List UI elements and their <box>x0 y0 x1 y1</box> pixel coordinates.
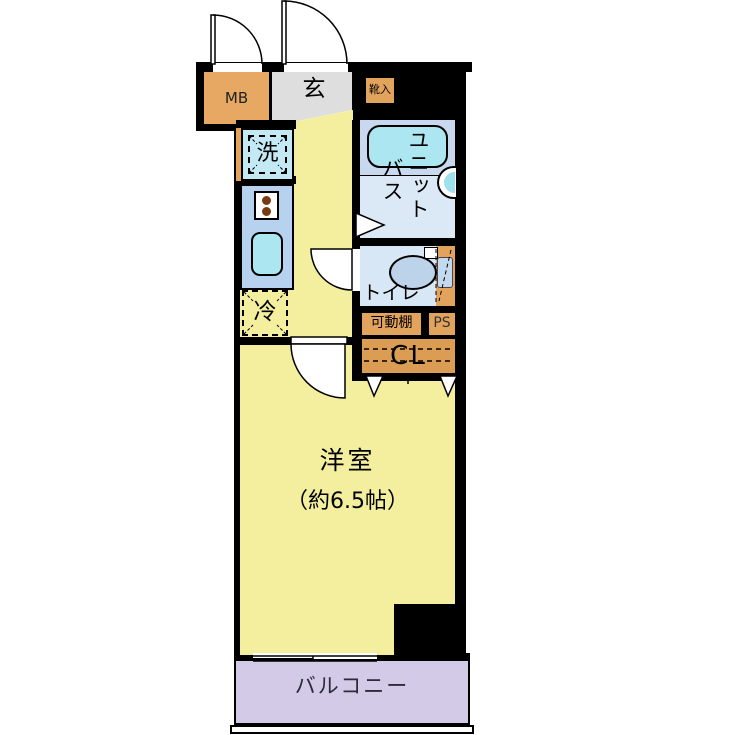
mb-door-leaf <box>211 15 215 64</box>
entrance-door-swing-arc <box>284 1 347 64</box>
floor-plan: MB 玄 靴入 ユニット バス 洗 トイレ 可動棚 PS CL 冷 洋室 （約6… <box>0 0 735 735</box>
room-name-label: 洋室 <box>240 445 455 477</box>
wall-room-top-right <box>345 337 353 345</box>
entrance-door-opening <box>284 63 348 72</box>
toilet-door-opening <box>352 249 360 291</box>
balcony-railing <box>230 725 474 734</box>
room-size-label: （約6.5帖） <box>240 487 455 517</box>
entrance-door-leaf <box>282 1 286 64</box>
unit-bath-label: ユニット <box>403 129 433 221</box>
movable-shelf-label: 可動棚 <box>362 313 421 335</box>
wall-bath-toilet <box>352 238 455 246</box>
corner-column <box>394 604 466 663</box>
kitchen-sink <box>251 232 283 276</box>
washer-label: 洗 <box>246 133 289 176</box>
stove-burner <box>262 196 271 205</box>
fridge-label: 冷 <box>242 290 288 336</box>
toilet-label: トイレ <box>360 282 422 304</box>
wall-bath-left <box>352 120 360 246</box>
balcony-label: バルコニー <box>234 662 470 712</box>
closet-label: CL <box>362 339 455 373</box>
mb-door-opening <box>213 63 262 72</box>
wall-room-top-left <box>234 337 292 345</box>
pipe-shaft-tank <box>437 257 453 288</box>
mb-door-swing-arc <box>213 15 262 64</box>
stove-burner <box>262 207 271 216</box>
shoe-storage-label: 靴入 <box>366 78 394 103</box>
unit-bath-label: バス <box>377 157 407 203</box>
meter-box-label: MB <box>204 72 269 124</box>
pipe-space-label: PS <box>429 313 455 335</box>
entrance-label: 玄 <box>272 74 356 106</box>
